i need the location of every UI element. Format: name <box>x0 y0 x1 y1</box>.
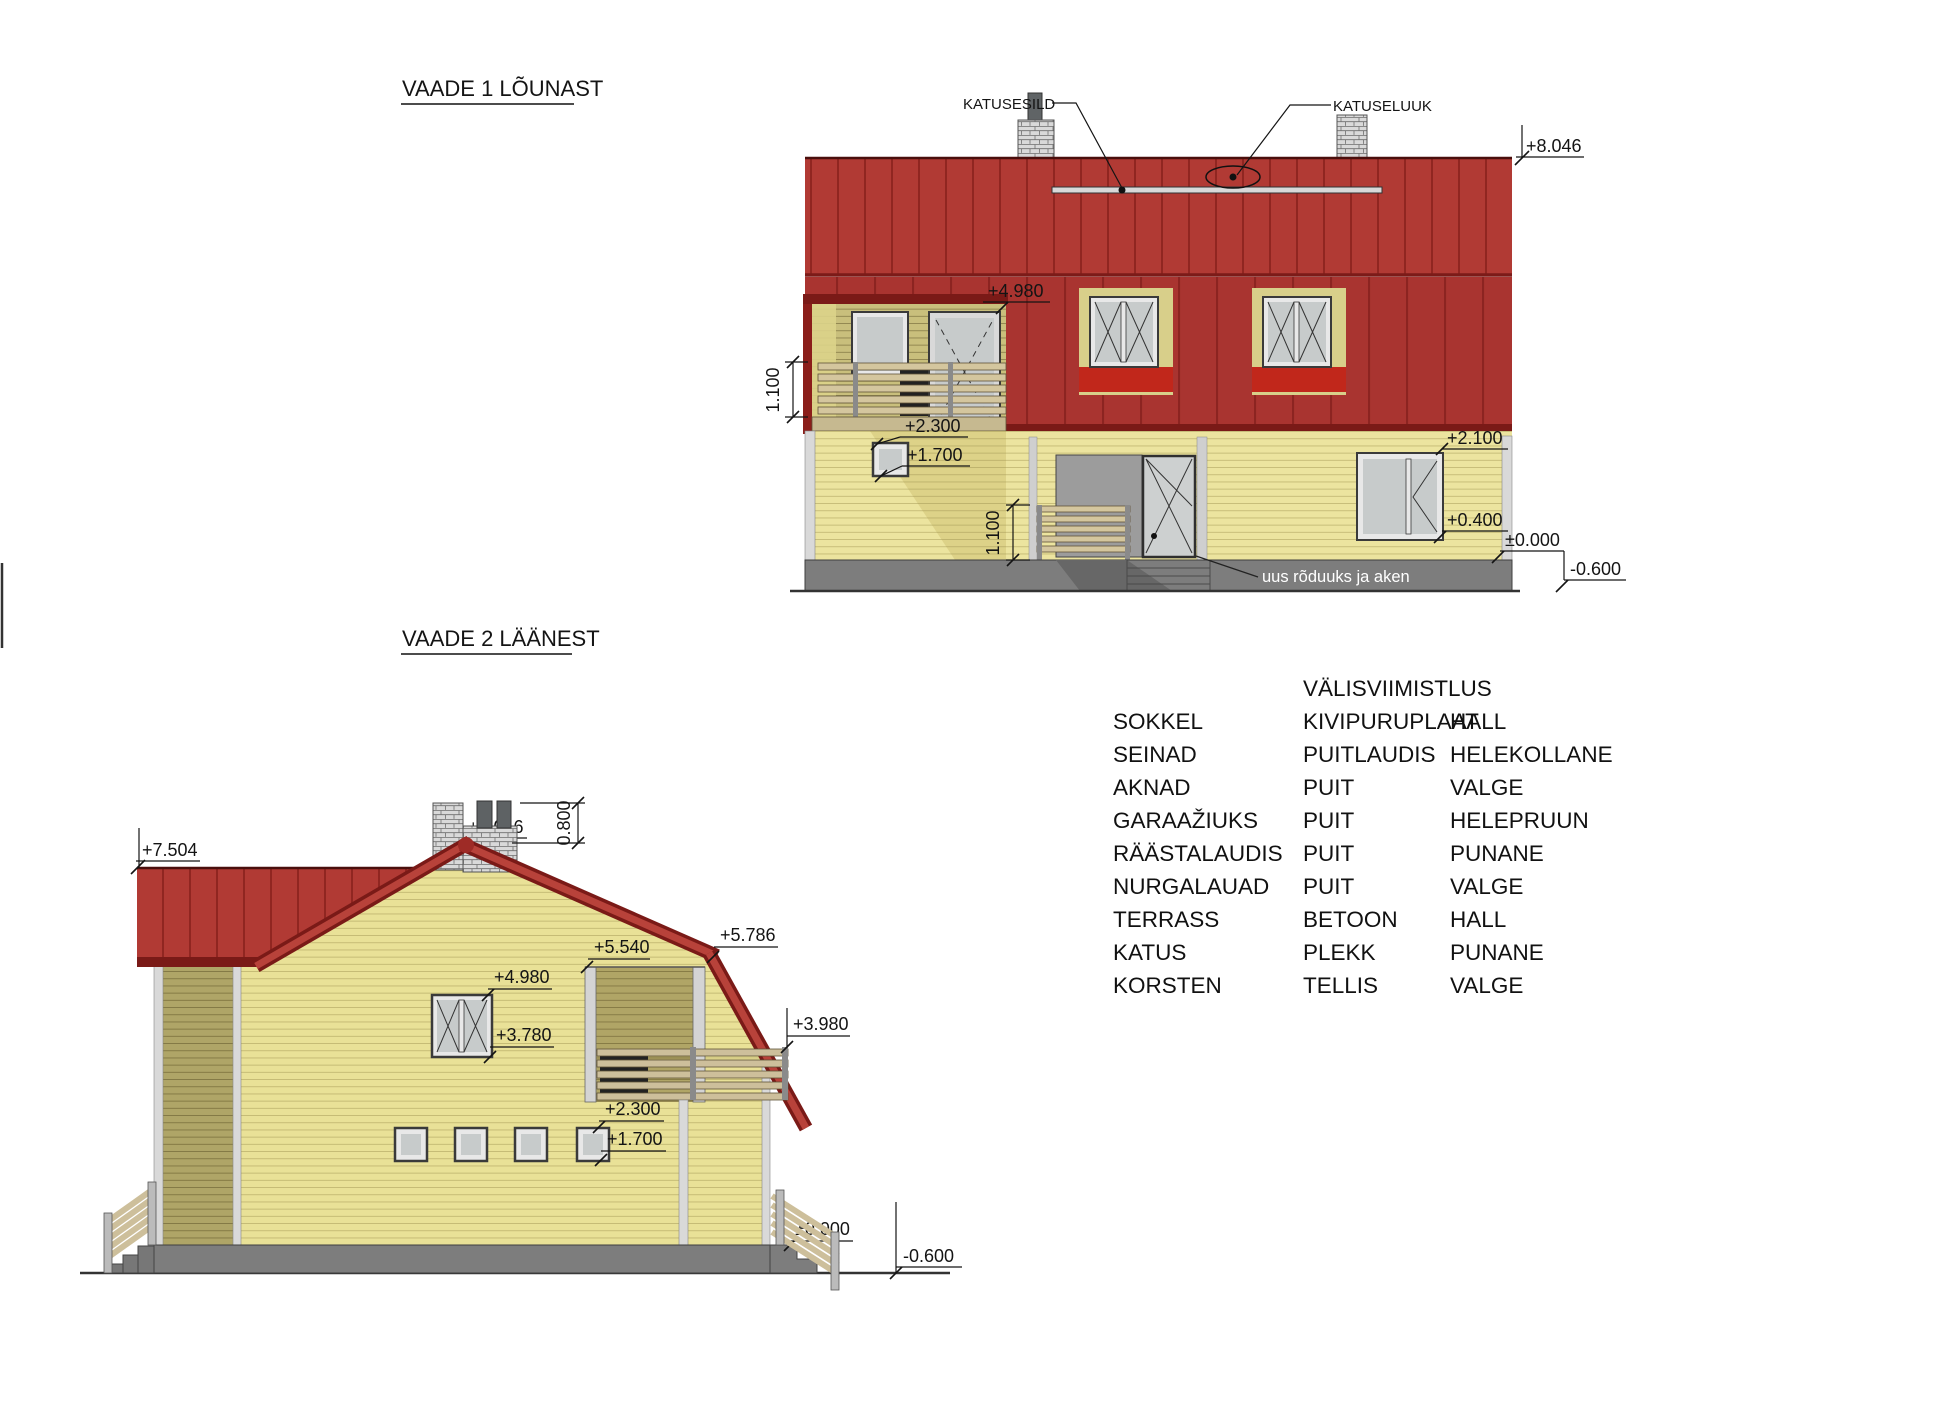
svg-text:+4.980: +4.980 <box>494 967 550 987</box>
katuseluuk-dot <box>1230 174 1237 181</box>
svg-text:+2.300: +2.300 <box>605 1099 661 1119</box>
corner-board-w-mid <box>233 962 241 1245</box>
material-cell: KIVIPURUPLAAT <box>1303 705 1450 738</box>
dim-railing-top: +3.980 <box>781 1008 850 1053</box>
part-cell: SEINAD <box>1113 738 1303 771</box>
svg-text:+3.980: +3.980 <box>793 1014 849 1034</box>
roof-upper-seams <box>805 158 1512 275</box>
svg-text:+7.504: +7.504 <box>142 840 198 860</box>
part-cell: KORSTEN <box>1113 969 1303 1002</box>
part-cell: KATUS <box>1113 936 1303 969</box>
materials-table: VÄLISVIIMISTLUS SOKKEL KIVIPURUPLAAT HAL… <box>1113 672 1613 1002</box>
svg-text:+5.540: +5.540 <box>594 937 650 957</box>
material-cell: PUITLAUDIS <box>1303 738 1450 771</box>
svg-text:+3.780: +3.780 <box>496 1025 552 1045</box>
dim-ground-level-2: -0.600 <box>890 1202 962 1279</box>
svg-text:0.800: 0.800 <box>554 800 574 845</box>
elevation-1-south: uus rõduuks ja aken KATUSESILD KATUSELUU… <box>763 93 1626 592</box>
svg-text:+0.400: +0.400 <box>1447 510 1503 530</box>
chimney-right <box>1337 115 1367 161</box>
svg-text:1.100: 1.100 <box>983 510 1003 555</box>
color-cell: VALGE <box>1450 969 1613 1002</box>
svg-text:-0.600: -0.600 <box>903 1246 954 1266</box>
table-row: KATUS PLEKK PUNANE <box>1113 936 1613 969</box>
table-row: NURGALAUAD PUIT VALGE <box>1113 870 1613 903</box>
dim-roof-ridge: +8.046 <box>1515 125 1584 165</box>
part-cell: NURGALAUAD <box>1113 870 1303 903</box>
table-row: RÄÄSTALAUDIS PUIT PUNANE <box>1113 837 1613 870</box>
main-roof-fascia <box>137 957 263 967</box>
porch-post-left <box>1029 437 1037 560</box>
part-cell: TERRASS <box>1113 903 1303 936</box>
view2-title: VAADE 2 LÄÄNEST <box>402 626 600 651</box>
svg-text:+1.700: +1.700 <box>607 1129 663 1149</box>
view1-title: VAADE 1 LÕUNAST <box>402 76 603 101</box>
entry-door <box>1143 456 1195 557</box>
shaded-wall-siding <box>163 962 235 1245</box>
drainpipe <box>679 1100 688 1245</box>
table-row: KORSTEN TELLIS VALGE <box>1113 969 1613 1002</box>
color-cell: HELEPRUUN <box>1450 804 1613 837</box>
porch-post-right <box>1197 437 1207 560</box>
katusesild-dot <box>1119 187 1126 194</box>
svg-text:±0.000: ±0.000 <box>1505 530 1560 550</box>
color-cell: HELEKOLLANE <box>1450 738 1613 771</box>
color-cell: VALGE <box>1450 771 1613 804</box>
katuseluuk-label: KATUSELUUK <box>1333 98 1432 115</box>
living-window <box>1357 453 1443 540</box>
table-row: GARAAŽIUKS PUIT HELEPRUUN <box>1113 804 1613 837</box>
table-row: TERRASS BETOON HALL <box>1113 903 1613 936</box>
color-cell: VALGE <box>1450 870 1613 903</box>
color-cell: PUNANE <box>1450 837 1613 870</box>
svg-text:+2.300: +2.300 <box>905 416 961 436</box>
elevation-drawing: VAADE 1 LÕUNAST VAADE 2 LÄÄNEST <box>0 0 1942 1411</box>
table-row: SEINAD PUITLAUDIS HELEKOLLANE <box>1113 738 1613 771</box>
material-cell: TELLIS <box>1303 969 1450 1002</box>
part-cell: GARAAŽIUKS <box>1113 804 1303 837</box>
balcony-recess <box>803 294 1008 434</box>
materials-table-title: VÄLISVIIMISTLUS <box>1303 672 1613 705</box>
material-cell: PUIT <box>1303 870 1450 903</box>
svg-text:1.100: 1.100 <box>763 367 783 412</box>
door-handle <box>1151 533 1157 539</box>
table-row: SOKKEL KIVIPURUPLAAT HALL <box>1113 705 1613 738</box>
recess-lintel <box>803 294 1008 304</box>
material-cell: PLEKK <box>1303 936 1450 969</box>
svg-text:+2.100: +2.100 <box>1447 428 1503 448</box>
renovation-note: uus rõduuks ja aken <box>1262 568 1410 586</box>
svg-text:+8.046: +8.046 <box>1526 136 1582 156</box>
part-cell: AKNAD <box>1113 771 1303 804</box>
plinth-west <box>154 1245 770 1273</box>
katusesild-label: KATUSESILD <box>963 96 1055 113</box>
recess-roof-return <box>803 304 812 434</box>
svg-text:-0.600: -0.600 <box>1570 559 1621 579</box>
loft-window-west <box>432 995 492 1057</box>
color-cell: HALL <box>1450 705 1613 738</box>
elevation-2-west: +8.046 <box>80 797 962 1290</box>
roof-bridge <box>1052 187 1382 193</box>
material-cell: PUIT <box>1303 837 1450 870</box>
corner-board-left <box>805 431 815 560</box>
material-cell: PUIT <box>1303 771 1450 804</box>
svg-text:+1.700: +1.700 <box>907 445 963 465</box>
drawing-sheet: VAADE 1 LÕUNAST VAADE 2 LÄÄNEST <box>0 0 1942 1411</box>
part-cell: RÄÄSTALAUDIS <box>1113 837 1303 870</box>
color-cell: HALL <box>1450 903 1613 936</box>
dim-balcony-railing: 1.100 <box>763 356 808 423</box>
right-stair-railing <box>772 1190 839 1290</box>
material-cell: BETOON <box>1303 903 1450 936</box>
color-cell: PUNANE <box>1450 936 1613 969</box>
dim-ground-level: -0.600 <box>1556 559 1626 592</box>
svg-text:+4.980: +4.980 <box>988 281 1044 301</box>
upper-window-left <box>1079 288 1173 395</box>
balcony-railing <box>818 362 1006 417</box>
part-cell: SOKKEL <box>1113 705 1303 738</box>
svg-text:+5.786: +5.786 <box>720 925 776 945</box>
upper-window-right <box>1252 288 1346 395</box>
material-cell: PUIT <box>1303 804 1450 837</box>
table-row: AKNAD PUIT VALGE <box>1113 771 1613 804</box>
